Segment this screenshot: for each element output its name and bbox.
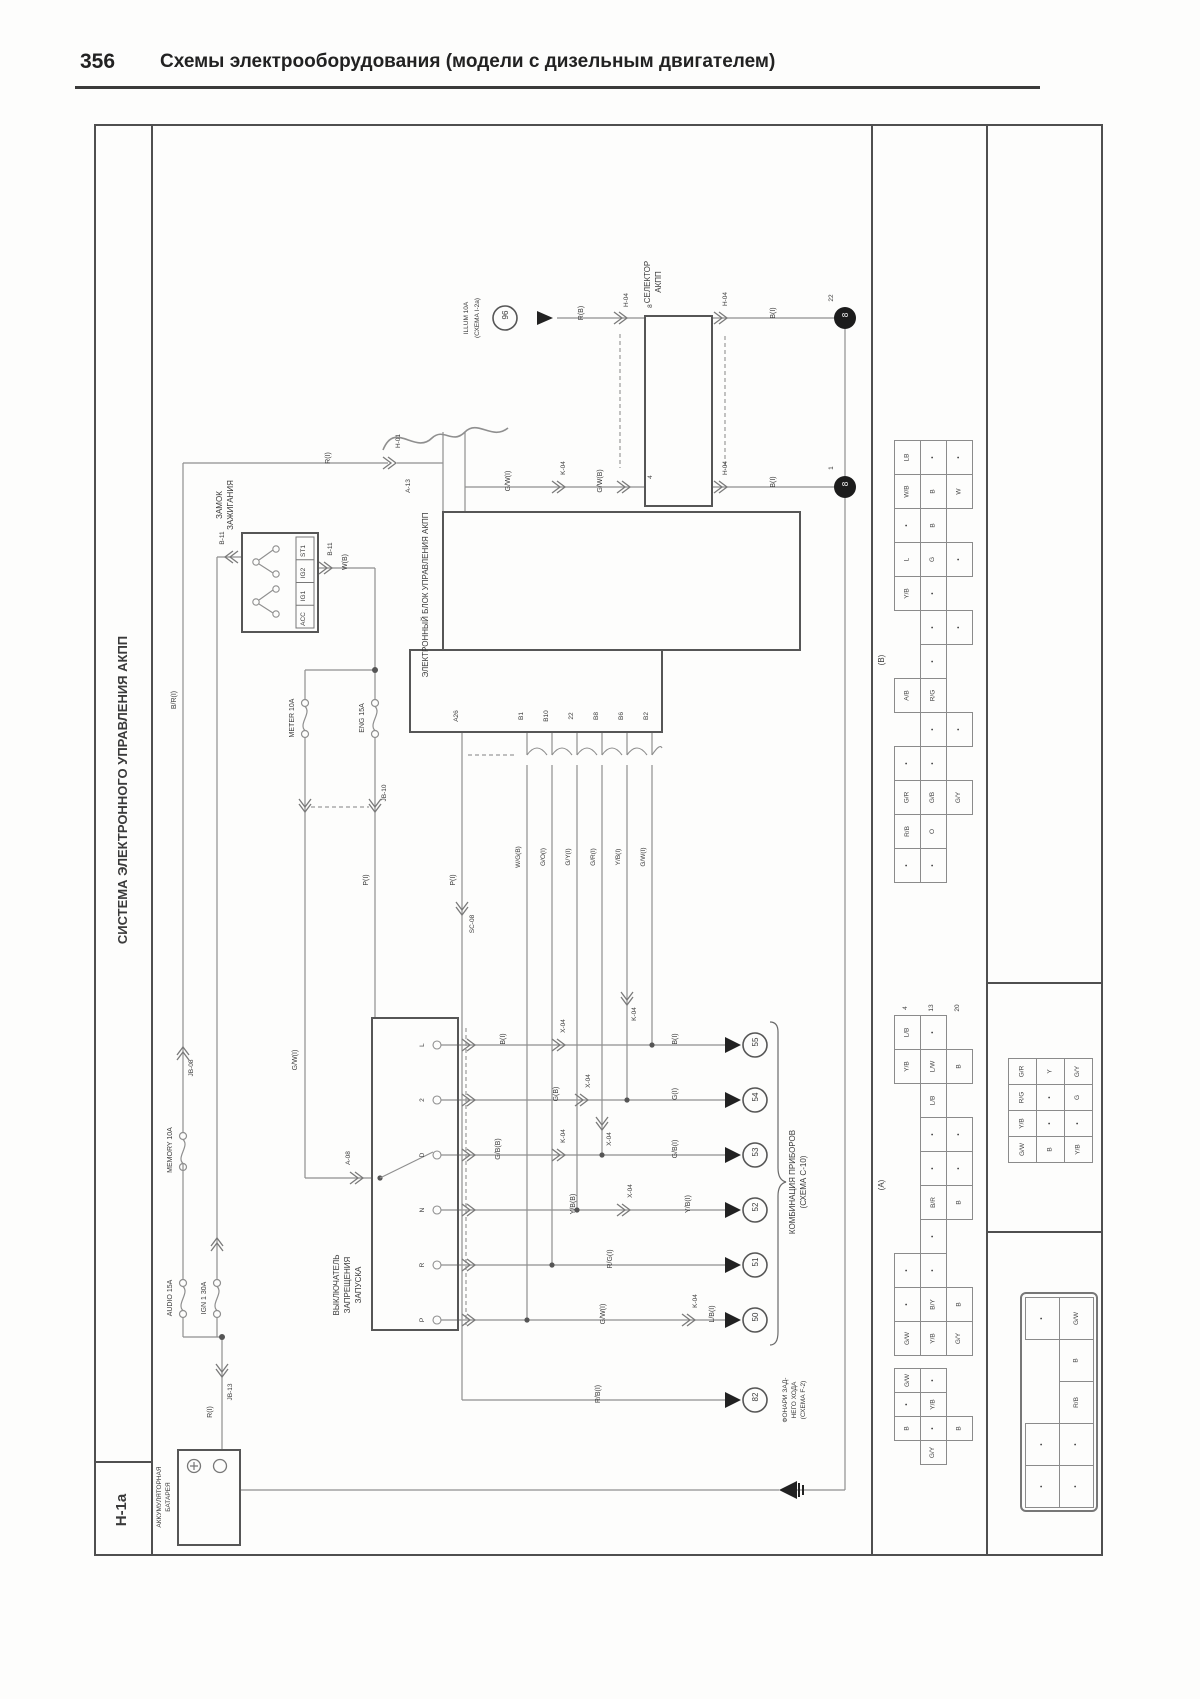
svg-text:P(I): P(I) [450, 874, 457, 885]
svg-text:X-04: X-04 [585, 1074, 592, 1088]
pin-cell: G/Y [946, 1321, 973, 1356]
svg-text:50: 50 [751, 1312, 760, 1321]
pin-cell [894, 1083, 921, 1118]
pin-cell [894, 712, 921, 747]
connector-table-right-mid: G/RYG/YR/G•GY/B••G/WBY/B [1008, 1058, 1092, 1162]
pin-cell: G/Y [920, 1440, 947, 1465]
svg-text:K-04: K-04 [560, 1129, 567, 1143]
svg-text:52: 52 [751, 1202, 760, 1211]
pin-cell: G/W [1008, 1136, 1037, 1163]
svg-text:8: 8 [841, 481, 850, 486]
selector-label: СЕЛЕКТОР [643, 261, 652, 303]
svg-text:G/B(B): G/B(B) [495, 1138, 502, 1159]
manual-page: { "page": { "number": "356", "title": "С… [0, 0, 1200, 1699]
svg-text:G/W(I): G/W(I) [292, 1050, 299, 1071]
selector: СЕЛЕКТОР АКПП 8 4 [643, 261, 712, 506]
pin-cell: • [894, 848, 921, 883]
pin-cell: B [894, 1416, 921, 1441]
svg-text:АКПП: АКПП [654, 271, 663, 293]
svg-text:IG2: IG2 [300, 567, 307, 578]
svg-text:JB-13: JB-13 [227, 1383, 234, 1400]
pin-cell [894, 1185, 921, 1220]
pin-cell [946, 1440, 973, 1465]
pin-cell [894, 1151, 921, 1186]
svg-text:B(I): B(I) [500, 1033, 507, 1044]
svg-text:B-11: B-11 [327, 542, 334, 556]
pin-cell: G [1064, 1084, 1093, 1111]
pin-cell: G [920, 542, 947, 577]
pin-cell: G/W [894, 1321, 921, 1356]
system-title: СИСТЕМА ЭЛЕКТРОННОГО УПРАВЛЕНИЯ АКПП [115, 636, 130, 944]
svg-text:БАТАРЕЯ: БАТАРЕЯ [165, 1482, 172, 1512]
svg-text:(СХЕМА F-2): (СХЕМА F-2) [800, 1381, 807, 1420]
pin-cell: L/B [920, 1083, 947, 1118]
pin-cell [946, 1083, 973, 1118]
ignition-label: ЗАМОК [215, 491, 224, 519]
fuse-audio: AUDIO 15A [167, 1279, 174, 1316]
pin-cell: B/R [920, 1185, 947, 1220]
pin-cell: Y/B [894, 576, 921, 611]
pin-cell [894, 644, 921, 679]
pin-cell [946, 746, 973, 781]
svg-text:JB-10: JB-10 [381, 784, 388, 801]
svg-text:(СХЕМА C-10): (СХЕМА C-10) [799, 1155, 808, 1208]
connector-shape: •G/WBR/B•••• [1020, 1292, 1098, 1512]
pin-cell: • [920, 746, 947, 781]
pin-cell: B [946, 1049, 973, 1084]
svg-text:N: N [419, 1207, 426, 1212]
svg-text:НЕГО ХОДА: НЕГО ХОДА [791, 1381, 798, 1418]
pin-cell: R/G [920, 678, 947, 713]
svg-text:G/W(I): G/W(I) [600, 1304, 607, 1325]
pin-cell: G/R [894, 780, 921, 815]
pin-cell: Y/B [1064, 1136, 1093, 1163]
fuse-ign1: IGN 1 30A [201, 1281, 208, 1314]
battery-minus-icon [214, 1460, 227, 1473]
pin-cell [946, 644, 973, 679]
svg-text:B6: B6 [618, 712, 625, 720]
indicator-circles [725, 1033, 767, 1412]
svg-text:W(B): W(B) [342, 554, 349, 570]
pin-cell: • [894, 1392, 921, 1417]
pin-cell: Y/B [920, 1321, 947, 1356]
pin-cell: • [894, 1253, 921, 1288]
pin-cell: • [1059, 1465, 1094, 1508]
pin-cell: B [946, 1185, 973, 1220]
fuse-eng: ENG 15A [359, 703, 366, 733]
svg-text:R(I): R(I) [325, 452, 332, 464]
pin-cell: • [1025, 1465, 1060, 1508]
svg-text:K-04: K-04 [692, 1294, 699, 1308]
svg-text:B10: B10 [543, 710, 550, 722]
svg-text:22: 22 [828, 294, 835, 302]
svg-text:P(I): P(I) [363, 874, 370, 885]
pin-cell [946, 848, 973, 883]
pin-cell: • [1059, 1423, 1094, 1466]
svg-text:B-11: B-11 [219, 531, 226, 545]
connector-table-b: LB••W/BBW•BLG•Y/B••••A/BR/G••••G/RG/BG/Y… [894, 440, 972, 882]
svg-text:ST1: ST1 [300, 545, 307, 557]
svg-text:G(I): G(I) [672, 1088, 679, 1100]
indicator-numbers: 55 54 53 52 51 50 82 [751, 1037, 760, 1401]
svg-text:K-04: K-04 [560, 461, 567, 475]
pin-cell: B [1036, 1136, 1065, 1163]
reverse-label: ФОНАРИ ЗАД- [782, 1378, 789, 1423]
svg-text:1: 1 [828, 466, 835, 470]
svg-text:K-04: K-04 [631, 1007, 638, 1021]
svg-text:B(I): B(I) [770, 476, 777, 487]
battery: АККУМУЛЯТОРНАЯ БАТАРЕЯ [156, 1450, 240, 1545]
svg-text:X-04: X-04 [627, 1184, 634, 1198]
pin-cell: • [894, 508, 921, 543]
svg-text:20: 20 [954, 1004, 961, 1012]
pin-cell: • [920, 644, 947, 679]
pin-cell: Y/B [894, 1049, 921, 1084]
wires [183, 318, 845, 1490]
svg-text:L/B(I): L/B(I) [709, 1305, 716, 1322]
chassis-ground-icon [779, 1481, 803, 1499]
pin-cell [946, 1392, 973, 1417]
pin-cell: B [920, 508, 947, 543]
pin-cell: • [1036, 1084, 1065, 1111]
svg-text:B(I): B(I) [672, 1033, 679, 1044]
pin-cell: • [920, 1416, 947, 1441]
pin-cell: • [920, 1117, 947, 1152]
pin-cell: G/R [1008, 1058, 1037, 1085]
battery-label: АККУМУЛЯТОРНАЯ [156, 1466, 163, 1527]
pin-cell: L/W [920, 1049, 947, 1084]
svg-text:G/W(I): G/W(I) [505, 471, 512, 492]
svg-text:R(B): R(B) [578, 306, 585, 320]
svg-text:G(B): G(B) [553, 1087, 560, 1102]
svg-text:L: L [419, 1043, 426, 1047]
svg-text:(СХЕМА I-2a): (СХЕМА I-2a) [474, 298, 481, 338]
svg-text:B(I): B(I) [770, 307, 777, 318]
pin-cell: • [920, 1368, 947, 1393]
pin-cell: Y [1036, 1058, 1065, 1085]
svg-text:A-08: A-08 [345, 1151, 352, 1165]
pin-cell: • [1036, 1110, 1065, 1137]
svg-text:R(I): R(I) [207, 1406, 214, 1418]
svg-text:13: 13 [928, 1004, 935, 1012]
pin-cell: G/W [894, 1368, 921, 1393]
inhibitor-switch: L 2 D N R P ВЫКЛЮЧАТЕЛЬ ЗАПРЕЩЕНИЯ ЗАПУС… [332, 1018, 458, 1330]
pin-cell: LB [894, 440, 921, 475]
pin-cell: W/B [894, 474, 921, 509]
svg-text:R/B(I): R/B(I) [595, 1385, 602, 1403]
svg-text:H-04: H-04 [722, 292, 729, 306]
svg-text:4: 4 [902, 1006, 909, 1010]
svg-text:G/O(I): G/O(I) [540, 848, 547, 866]
svg-text:ЗАПРЕЩЕНИЯ: ЗАПРЕЩЕНИЯ [343, 1256, 352, 1313]
svg-text:Y/B(I): Y/B(I) [615, 849, 622, 866]
pin-cell: • [920, 1253, 947, 1288]
pin-cell: Y/B [920, 1392, 947, 1417]
pin-cell: L/B [894, 1015, 921, 1050]
svg-text:G/W(I): G/W(I) [640, 847, 647, 866]
svg-text:8: 8 [841, 312, 850, 317]
svg-text:R/G(I): R/G(I) [607, 1249, 614, 1268]
fuses: AUDIO 15A IGN 1 30A MEMORY 10A METER 10A… [167, 698, 379, 1317]
pin-cell [894, 1117, 921, 1152]
svg-text:Y/B(I): Y/B(I) [685, 1195, 692, 1213]
pin-cell: G/Y [946, 780, 973, 815]
pin-cell: • [946, 1151, 973, 1186]
svg-text:G/R(I): G/R(I) [590, 848, 597, 866]
pin-cell: • [920, 848, 947, 883]
pin-cell: • [946, 542, 973, 577]
svg-text:22: 22 [568, 712, 575, 720]
svg-text:51: 51 [751, 1257, 760, 1266]
svg-text:54: 54 [751, 1092, 760, 1101]
pin-cell [946, 678, 973, 713]
pin-cell [946, 508, 973, 543]
svg-text:G/B(I): G/B(I) [672, 1140, 679, 1159]
svg-text:G/Y(I): G/Y(I) [565, 848, 572, 865]
pin-cell [894, 1440, 921, 1465]
svg-text:H-04: H-04 [722, 461, 729, 475]
pin-cell: • [946, 1117, 973, 1152]
pin-cell: • [920, 1015, 947, 1050]
svg-text:D: D [419, 1152, 426, 1157]
svg-text:W/G(B): W/G(B) [515, 846, 522, 868]
diagram-code: H-1a [113, 1493, 130, 1526]
pin-cell: W [946, 474, 973, 509]
svg-text:G/W(B): G/W(B) [597, 469, 604, 492]
pin-cell [946, 814, 973, 849]
svg-text:H-04: H-04 [623, 293, 630, 307]
connector-table-a: L/B•Y/BL/WBL/B••••B/RB••••B/YBG/WY/BG/Y [894, 1015, 972, 1355]
circle-96: 96 [501, 310, 510, 319]
pin-cell: • [894, 746, 921, 781]
pin-cell: B/Y [920, 1287, 947, 1322]
junction-dots [219, 667, 655, 1340]
svg-text:8: 8 [647, 304, 654, 308]
svg-text:B8: B8 [593, 712, 600, 720]
pin-cell: • [946, 440, 973, 475]
pin-cell: B [946, 1416, 973, 1441]
combo-label: КОМБИНАЦИЯ ПРИБОРОВ [788, 1130, 797, 1234]
svg-text:ЗАЖИГАНИЯ: ЗАЖИГАНИЯ [226, 480, 235, 530]
svg-text:55: 55 [751, 1037, 760, 1046]
pin-cell: G/Y [1064, 1058, 1093, 1085]
pin-cell: • [920, 576, 947, 611]
ecu-label: ЭЛЕКТРОННЫЙ БЛОК УПРАВЛЕНИЯ АКПП [421, 512, 430, 677]
pin-cell [1025, 1381, 1060, 1424]
svg-text:53: 53 [751, 1147, 760, 1156]
pin-cell [894, 1219, 921, 1254]
svg-text:ЗАПУСКА: ЗАПУСКА [354, 1266, 363, 1303]
pin-cell [946, 576, 973, 611]
inhibitor-label: ВЫКЛЮЧАТЕЛЬ [332, 1255, 341, 1316]
svg-text:ACC: ACC [300, 612, 307, 626]
svg-text:4: 4 [647, 475, 654, 479]
pin-cell: B [920, 474, 947, 509]
pin-cell: A/B [894, 678, 921, 713]
svg-text:P: P [419, 1318, 426, 1322]
combo-brace [770, 1022, 786, 1345]
fuse-meter: METER 10A [289, 698, 296, 737]
pin-cell: • [894, 1287, 921, 1322]
shield-dashes [311, 334, 725, 1325]
pin-cell: B [1059, 1339, 1094, 1382]
svg-text:2: 2 [419, 1098, 426, 1102]
arrow-icon [537, 311, 553, 325]
svg-text:(A): (A) [877, 1179, 886, 1190]
ground-circles: 8 8 22 1 [828, 294, 856, 498]
pin-cell: • [1025, 1423, 1060, 1466]
pin-cell: O [920, 814, 947, 849]
pin-cell: G/W [1059, 1297, 1094, 1340]
svg-text:IG1: IG1 [300, 590, 307, 601]
pin-cell: • [920, 1151, 947, 1186]
pin-cell: Y/B [1008, 1110, 1037, 1137]
svg-text:ILLUM 10A: ILLUM 10A [463, 301, 470, 334]
svg-text:JB-08: JB-08 [188, 1059, 195, 1076]
pin-cell: • [920, 712, 947, 747]
pin-cell: • [920, 1219, 947, 1254]
pin-cell: R/G [1008, 1084, 1037, 1111]
wire-labels: R(I) H-01 A-13 B-11 B-11 W(B) B/R(I) JB-… [171, 292, 961, 1418]
svg-text:SC-08: SC-08 [469, 914, 476, 933]
pin-cell [1025, 1339, 1060, 1382]
svg-text:X-04: X-04 [560, 1019, 567, 1033]
svg-text:A26: A26 [453, 710, 460, 722]
illum-source: 96 ILLUM 10A (СХЕМА I-2a) [463, 298, 553, 338]
pin-cell: B [946, 1287, 973, 1322]
pin-cell: L [894, 542, 921, 577]
pin-cell: • [920, 440, 947, 475]
pin-cell: • [1064, 1110, 1093, 1137]
pin-cell: R/B [894, 814, 921, 849]
pin-cell [894, 610, 921, 645]
pin-cell: • [1025, 1297, 1060, 1340]
svg-text:Y/B(B): Y/B(B) [570, 1194, 577, 1215]
svg-text:H-01: H-01 [395, 434, 402, 448]
pin-cell: • [946, 610, 973, 645]
pin-cell [946, 1253, 973, 1288]
pin-cell: • [946, 712, 973, 747]
svg-text:X-04: X-04 [606, 1132, 613, 1146]
pin-cell [946, 1015, 973, 1050]
pin-cell [946, 1219, 973, 1254]
pin-cell: G/B [920, 780, 947, 815]
connector-table-mid-bottom: G/W••Y/BB•BG/Y [894, 1368, 972, 1464]
svg-text:B2: B2 [643, 712, 650, 720]
svg-text:R: R [419, 1262, 426, 1267]
svg-text:A-13: A-13 [405, 479, 412, 493]
pin-cell [946, 1368, 973, 1393]
svg-text:82: 82 [751, 1392, 760, 1401]
pin-cell: R/B [1059, 1381, 1094, 1424]
svg-text:B/R(I): B/R(I) [171, 691, 178, 709]
pin-cell: • [920, 610, 947, 645]
fuse-memory: MEMORY 10A [167, 1127, 174, 1173]
svg-text:B1: B1 [518, 712, 525, 720]
svg-text:(B): (B) [877, 654, 886, 665]
ecu-block: ЭЛЕКТРОННЫЙ БЛОК УПРАВЛЕНИЯ АКПП A26 B1 … [410, 512, 800, 732]
